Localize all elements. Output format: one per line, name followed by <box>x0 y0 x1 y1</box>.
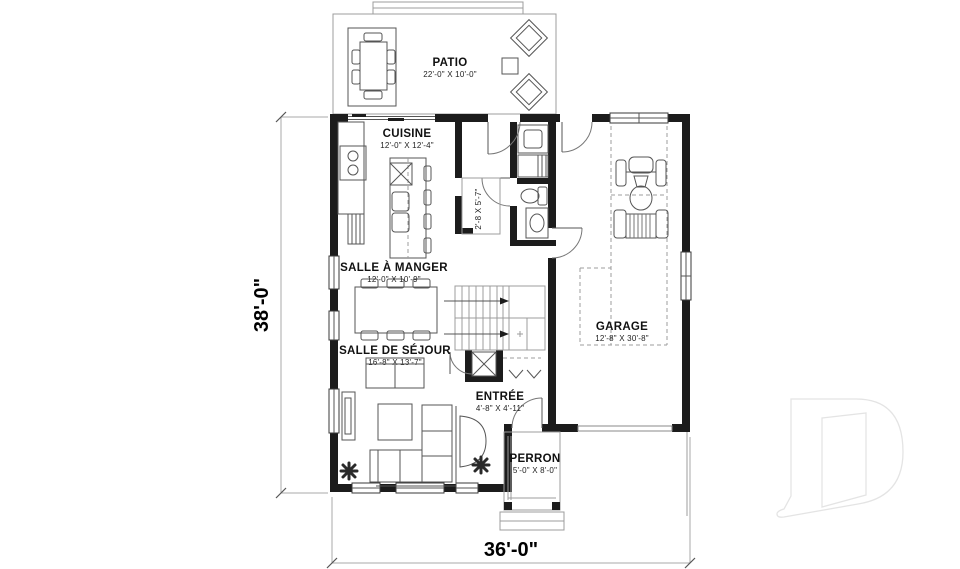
sink-vanity <box>526 208 548 238</box>
garage-side-door-swing <box>562 122 592 152</box>
cuisine-label: CUISINE <box>383 128 432 140</box>
dishwasher <box>348 214 364 244</box>
garage-size: 12'-8" X 30'-8" <box>595 334 649 343</box>
perron-label: PERRON <box>509 453 560 465</box>
plant-icon <box>341 463 357 479</box>
dining-table <box>355 279 437 340</box>
perron-size: 5'-0" X 8'-0" <box>513 466 557 475</box>
window <box>329 389 339 433</box>
kitchen-island <box>390 158 431 258</box>
patio-side-table <box>502 58 518 74</box>
dimension-left: 38'-0" <box>251 112 328 498</box>
salle-de-sejour-label: SALLE DE SÉJOUR <box>339 344 451 357</box>
tv-console <box>342 392 355 440</box>
patio-sliding-door <box>348 114 435 121</box>
island-sink <box>392 192 409 232</box>
perron-steps <box>500 512 564 530</box>
cuisine-size: 12'-0" X 12'-4" <box>380 141 434 150</box>
garage-door <box>578 426 672 431</box>
patio-label: PATIO <box>433 57 468 69</box>
patio-size: 22'-0" X 10'-0" <box>423 70 477 79</box>
patio-area: PATIO 22'-0" X 10'-0" <box>333 2 556 114</box>
bathroom-door-swing <box>482 178 510 206</box>
garage-hall-door-swing <box>552 228 582 258</box>
patio-dining-set <box>348 28 396 106</box>
washer <box>518 125 548 153</box>
garage-label: GARAGE <box>596 321 648 333</box>
plant-icon <box>473 457 489 473</box>
window <box>329 311 339 340</box>
interior-walls <box>455 114 556 382</box>
window <box>329 256 339 289</box>
patio-steps <box>373 2 523 14</box>
laundry-room <box>518 125 548 177</box>
sectional-sofa <box>370 405 456 486</box>
island-stools <box>424 166 431 253</box>
entree-size: 4'-8" X 4'-11" <box>476 404 524 413</box>
salle-a-manger-size: 12'-0" X 10'-9" <box>367 275 421 284</box>
tractor <box>614 157 668 238</box>
stairs <box>444 286 545 350</box>
builder-logo <box>777 399 903 517</box>
toilet <box>521 187 547 205</box>
window <box>352 483 380 493</box>
salle-a-manger-label: SALLE À MANGER <box>340 261 448 274</box>
pantry-size: 2'-8 X 5'-7" <box>474 188 483 229</box>
coat-closet <box>503 358 541 378</box>
kitchen-counter <box>338 122 366 244</box>
dryer <box>518 155 548 177</box>
patio-lounge-chair <box>511 20 548 57</box>
floor-plan-drawing: PATIO 22'-0" X 10'-0" <box>0 0 960 569</box>
width-dimension: 36'-0" <box>484 539 538 561</box>
patio-lounge-chair <box>511 74 548 111</box>
pantry: 2'-8 X 5'-7" <box>462 178 500 234</box>
coffee-table <box>378 404 412 440</box>
garage-stall-dashes <box>580 126 667 345</box>
floor-plan: PATIO 22'-0" X 10'-0" <box>0 0 960 569</box>
window <box>456 483 478 493</box>
stove <box>340 146 366 180</box>
window <box>610 113 668 123</box>
window <box>396 483 444 493</box>
powder-room <box>521 187 548 238</box>
entree-label: ENTRÉE <box>476 390 524 403</box>
depth-dimension: 38'-0" <box>251 278 273 332</box>
window <box>681 252 691 300</box>
linen-closet <box>472 352 496 376</box>
